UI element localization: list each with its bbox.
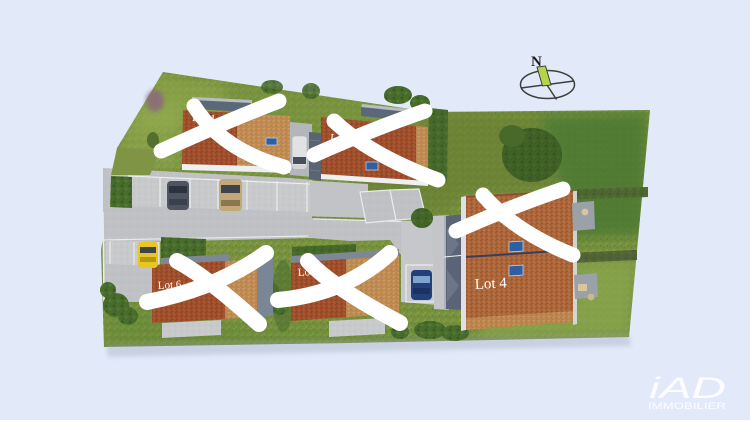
svg-text:Lot 4: Lot 4 bbox=[474, 275, 507, 293]
svg-text:N: N bbox=[531, 54, 542, 70]
svg-text:IMMOBILIER: IMMOBILIER bbox=[648, 401, 727, 411]
